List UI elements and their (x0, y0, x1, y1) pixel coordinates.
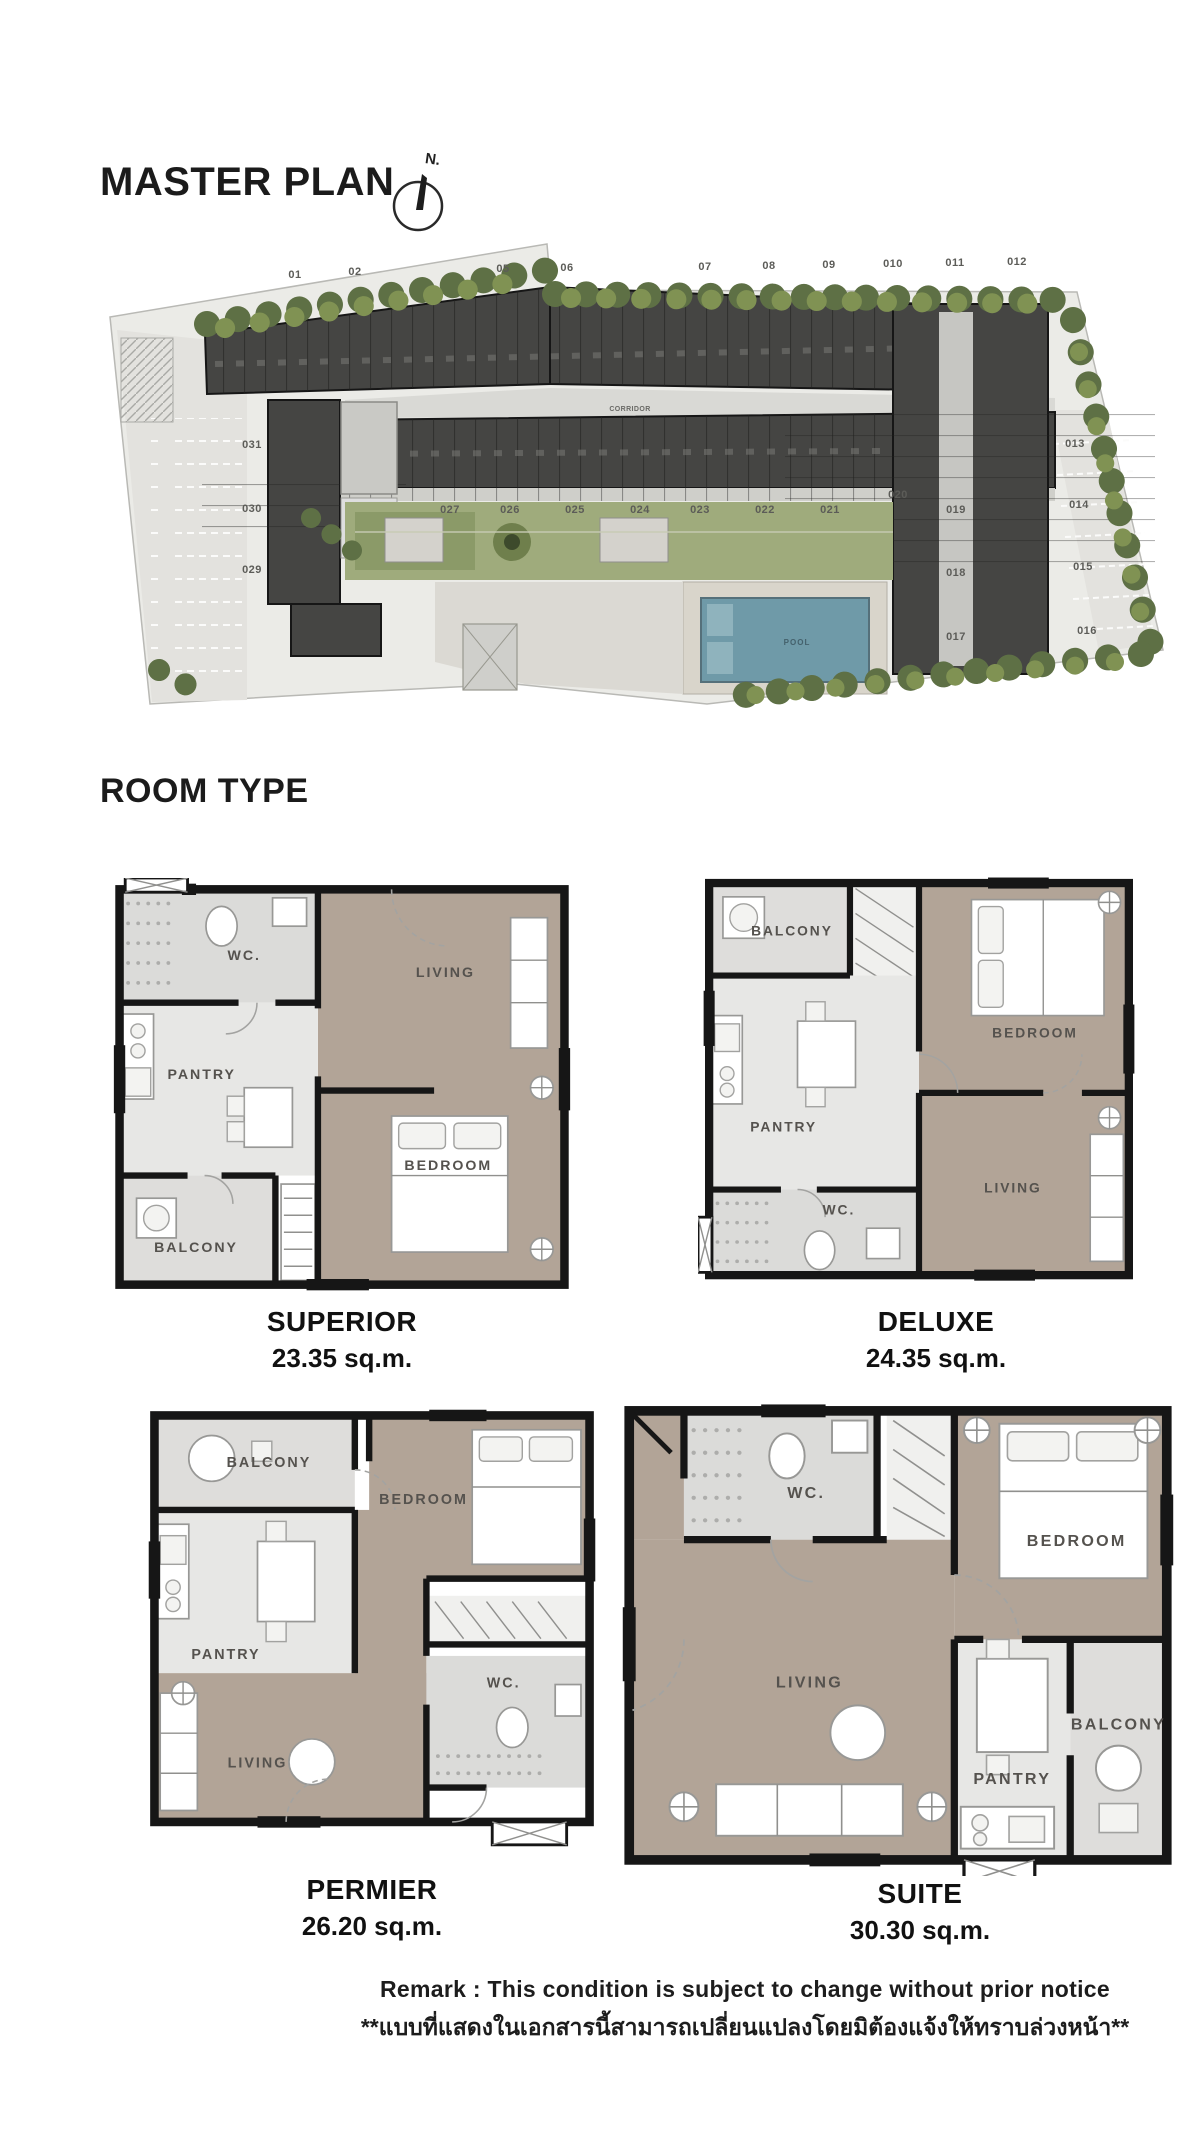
entry-hall (629, 1411, 684, 1540)
pillow-icon (399, 1123, 446, 1149)
sink-icon (273, 898, 307, 926)
toilet-icon (497, 1707, 528, 1747)
pillow-icon (479, 1437, 522, 1461)
caption-permier: PERMIER 26.20 sq.m. (212, 1874, 532, 1942)
unit-label: 019 (946, 504, 966, 516)
unit-label: 031 (242, 439, 262, 451)
room-label-balcony: BALCONY (751, 924, 833, 939)
courtyard-garden (345, 502, 893, 580)
unit-label: 029 (242, 564, 262, 576)
plan-area: 26.20 sq.m. (212, 1911, 532, 1942)
room-label-balcony: BALCONY (1071, 1716, 1166, 1734)
remark-block: Remark : This condition is subject to ch… (240, 1976, 1200, 2046)
washer-drum (144, 1205, 170, 1231)
floorplan-superior: WC. LIVING PANTRY BEDROOM BALCONY (108, 878, 576, 1296)
kitchen-sink-icon (125, 1068, 151, 1096)
corridor-label: CORRIDOR (609, 406, 650, 413)
entrance-door (964, 1860, 1035, 1876)
garden-structure (435, 582, 683, 694)
unit-label: 023 (690, 504, 710, 516)
remark-line-th: **แบบที่แสดงในเอกสารนี้สามารถเปลี่ยนแปลง… (240, 2010, 1200, 2046)
unit-label: 09 (822, 259, 835, 271)
unit-label: 030 (242, 503, 262, 515)
sink-icon (867, 1228, 900, 1258)
unit-label: 012 (1007, 256, 1027, 268)
room-label-pantry: PANTRY (750, 1120, 817, 1135)
room-label-living: LIVING (228, 1756, 288, 1772)
floorplan-permier: BALCONY BEDROOM PANTRY LIVING WC. (143, 1404, 601, 1852)
room-type-title: ROOM TYPE (100, 772, 309, 811)
plan-name: SUITE (760, 1878, 1080, 1910)
toilet-icon (804, 1231, 834, 1270)
pool-label: POOL (784, 638, 811, 647)
caption-deluxe: DELUXE 24.35 sq.m. (776, 1306, 1096, 1374)
balcony-chair (1096, 1746, 1141, 1791)
pillow-icon (978, 960, 1003, 1007)
room-label-bedroom: BEDROOM (1027, 1532, 1127, 1550)
stove-icon (720, 1067, 734, 1081)
pantry-table (244, 1088, 292, 1148)
room-label-bedroom: BEDROOM (992, 1026, 1078, 1041)
unit-label: 014 (1069, 499, 1089, 511)
plan-name: PERMIER (212, 1874, 532, 1906)
ramp-hatch (121, 338, 173, 422)
plan-name: DELUXE (776, 1306, 1096, 1338)
master-plan-illustration: CORRIDOR LIFT HALL (55, 232, 1170, 717)
living-round-table (289, 1739, 335, 1785)
sink-icon (832, 1421, 867, 1453)
plan-area: 24.35 sq.m. (776, 1343, 1096, 1374)
ac-ledge (281, 1184, 315, 1280)
unit-label: 02 (348, 266, 361, 278)
caption-suite: SUITE 30.30 sq.m. (760, 1878, 1080, 1946)
stove-icon (131, 1044, 145, 1058)
parking-stalls-left (151, 418, 247, 686)
dining-table (977, 1659, 1048, 1752)
room-label-balcony: BALCONY (154, 1240, 238, 1256)
stove-icon (720, 1083, 734, 1097)
sink-icon (555, 1685, 581, 1716)
unit-label: 026 (500, 504, 520, 516)
remark-line-en: Remark : This condition is subject to ch… (240, 1976, 1200, 2003)
north-compass-icon: N. (380, 148, 460, 240)
unit-label: 013 (1065, 438, 1085, 450)
room-label-wc: WC. (227, 948, 260, 964)
pillow-icon (978, 907, 1003, 954)
floorplan-suite: WC. BEDROOM LIVING PANTRY BALCONY (616, 1398, 1180, 1876)
closet (887, 1411, 955, 1540)
unit-label: 011 (945, 257, 964, 269)
unit-label: 020 (888, 489, 908, 501)
chair-icon (806, 1087, 825, 1106)
chair-icon (266, 1622, 286, 1642)
room-label-living: LIVING (416, 965, 475, 981)
stove-icon (131, 1024, 145, 1038)
entrance-door (492, 1822, 566, 1845)
pillow-icon (529, 1437, 572, 1461)
sofa-icon (716, 1784, 903, 1836)
room-label-living: LIVING (984, 1180, 1042, 1195)
sofa-icon (511, 918, 548, 1048)
room-label-wc: WC. (787, 1484, 825, 1502)
unit-label: 08 (762, 260, 775, 272)
pillow-icon (1077, 1432, 1138, 1461)
unit-label: 015 (1073, 561, 1093, 573)
room-label-living: LIVING (776, 1674, 843, 1692)
kitchen-sink-icon (1009, 1816, 1044, 1842)
unit-label: 05 (496, 263, 509, 275)
room-label-wc: WC. (823, 1202, 856, 1217)
entrance-door (698, 1217, 712, 1272)
entrance-door (125, 878, 187, 892)
unit-label: 07 (698, 261, 711, 273)
stove-icon (166, 1580, 180, 1594)
chair-icon (266, 1521, 286, 1541)
unit-label: 025 (565, 504, 585, 516)
unit-label: 017 (946, 631, 966, 643)
room-label-pantry: PANTRY (973, 1770, 1051, 1788)
brochure-page: MASTER PLAN N. (0, 0, 1200, 2132)
kitchen-sink-icon (160, 1536, 186, 1565)
chair-icon (806, 1002, 825, 1021)
pillow-icon (1007, 1432, 1068, 1461)
unit-label: 027 (440, 504, 460, 516)
room-label-balcony: BALCONY (227, 1455, 312, 1471)
pantry-table (798, 1021, 856, 1087)
sofa-icon (160, 1693, 197, 1810)
unit-label: 016 (1077, 625, 1097, 637)
room-label-pantry: PANTRY (191, 1647, 260, 1663)
pantry-table (258, 1541, 315, 1621)
room-label-wc: WC. (487, 1675, 521, 1691)
unit-label: 010 (883, 258, 903, 270)
room-label-bedroom: BEDROOM (379, 1492, 468, 1508)
caption-superior: SUPERIOR 23.35 sq.m. (182, 1306, 502, 1374)
plan-name: SUPERIOR (182, 1306, 502, 1338)
living-round-table (830, 1705, 885, 1760)
unit-label: 01 (288, 269, 301, 281)
unit-label: 018 (946, 567, 966, 579)
plan-area: 23.35 sq.m. (182, 1343, 502, 1374)
north-label: N. (424, 150, 441, 169)
room-label-pantry: PANTRY (167, 1067, 236, 1083)
stove-icon (972, 1815, 988, 1831)
chair-icon (227, 1096, 244, 1116)
unit-label: 024 (630, 504, 650, 516)
master-plan-title: MASTER PLAN (100, 160, 394, 205)
stove-icon (974, 1833, 987, 1846)
pillow-icon (454, 1123, 501, 1149)
unit-label: 06 (560, 262, 573, 274)
toilet-icon (769, 1433, 804, 1478)
stove-icon (166, 1597, 180, 1611)
toilet-icon (206, 906, 237, 946)
chair-icon (987, 1639, 1010, 1658)
kitchen-sink-icon (715, 1024, 740, 1052)
pool-area: POOL (683, 582, 887, 694)
unit-label: 021 (820, 504, 840, 516)
sofa-icon (1090, 1134, 1123, 1261)
floorplan-deluxe: BALCONY BEDROOM PANTRY WC. LIVING (698, 872, 1140, 1300)
plan-area: 30.30 sq.m. (760, 1915, 1080, 1946)
room-label-bedroom: BEDROOM (404, 1158, 492, 1174)
chair-icon (227, 1122, 244, 1142)
balcony-table (1099, 1804, 1138, 1833)
unit-label: 022 (755, 504, 775, 516)
